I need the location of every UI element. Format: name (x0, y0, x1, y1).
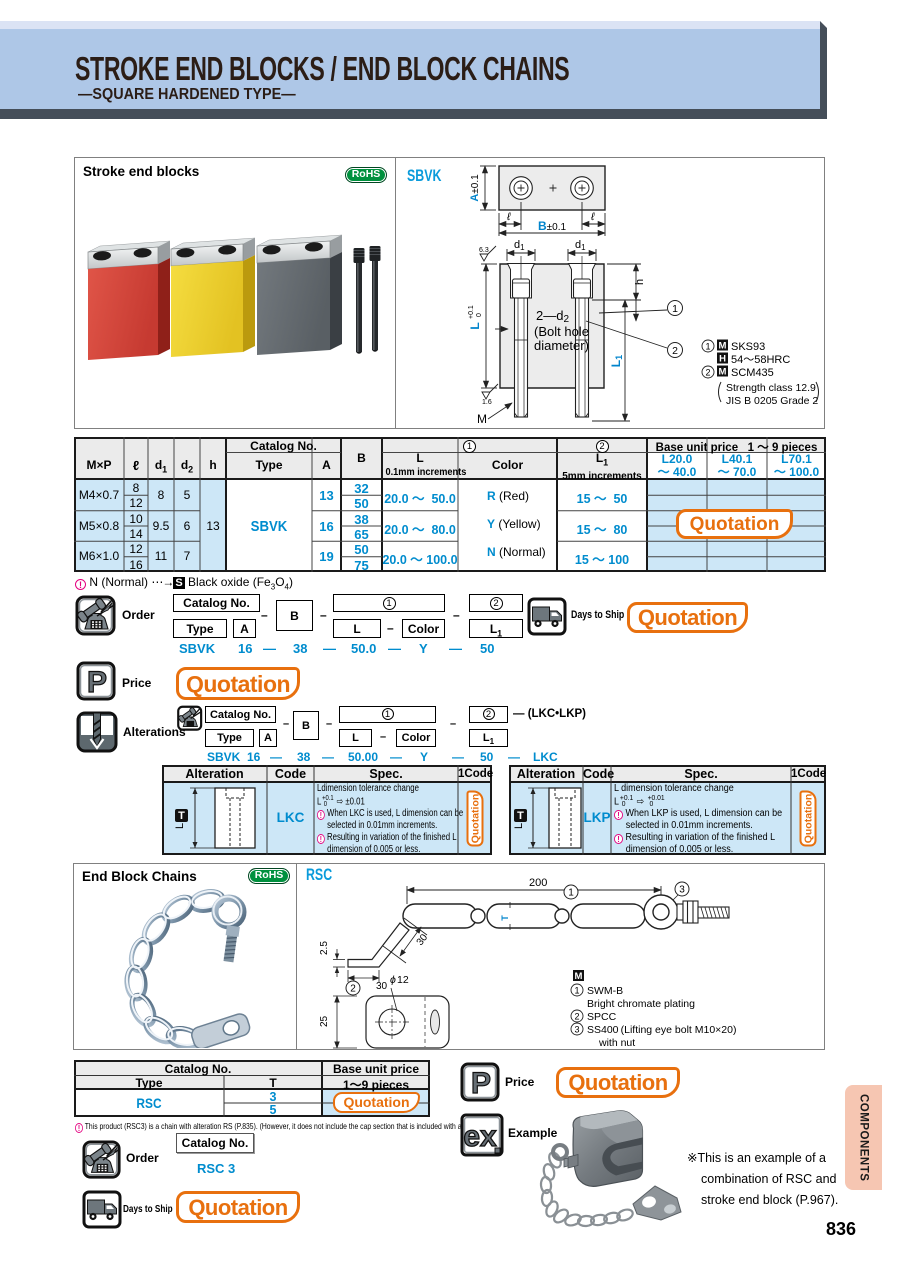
svg-text:12: 12 (397, 974, 409, 986)
svg-text:Bright chromate plating: Bright chromate plating (587, 998, 695, 1010)
svg-text:0: 0 (476, 313, 483, 317)
svg-text:d1: d1 (514, 239, 525, 252)
svg-text:30: 30 (415, 932, 431, 948)
svg-text:ℓ: ℓ (506, 211, 511, 223)
svg-text:with nut: with nut (598, 1037, 635, 1049)
svg-text:L: L (513, 823, 525, 829)
svg-text:2.5: 2.5 (319, 941, 330, 955)
svg-text:1: 1 (705, 342, 710, 352)
svg-text:1: 1 (672, 303, 678, 315)
svg-text:T: T (500, 915, 510, 921)
svg-text:2: 2 (672, 345, 678, 357)
svg-text:P: P (471, 1067, 491, 1100)
svg-text:B±0.1: B±0.1 (538, 219, 567, 233)
svg-text:M: M (719, 341, 727, 352)
svg-text:54〜58HRC: 54〜58HRC (731, 354, 790, 366)
svg-text:200: 200 (529, 877, 547, 889)
svg-text:SKS93: SKS93 (731, 341, 765, 353)
svg-text:M: M (575, 971, 583, 982)
svg-text:SCM435: SCM435 (731, 367, 774, 379)
svg-text:P: P (87, 666, 107, 699)
svg-text:M: M (719, 367, 727, 378)
svg-text:2: 2 (574, 1012, 579, 1022)
svg-text:h: h (634, 279, 646, 285)
svg-text:3: 3 (574, 1025, 579, 1035)
svg-text:T: T (178, 810, 185, 822)
svg-text:L1: L1 (609, 355, 624, 367)
svg-text:ɸ: ɸ (390, 974, 396, 986)
svg-text:H: H (719, 354, 726, 365)
svg-text:M: M (477, 412, 487, 426)
svg-text:6.3: 6.3 (479, 247, 489, 254)
svg-text:ℓ: ℓ (590, 211, 595, 223)
svg-text:SPCC: SPCC (587, 1011, 617, 1023)
svg-text:2: 2 (350, 984, 356, 995)
svg-text:Strength class 12.9: Strength class 12.9 (726, 382, 816, 394)
svg-text:SS400 (Lifting eye bolt M10×20: SS400 (Lifting eye bolt M10×20) (587, 1024, 737, 1036)
svg-text:d1: d1 (575, 239, 586, 252)
svg-text:JIS B 0205 Grade 2: JIS B 0205 Grade 2 (726, 395, 818, 407)
svg-text:1.6: 1.6 (482, 399, 492, 406)
svg-text:SWM-B: SWM-B (587, 985, 623, 997)
svg-text:T: T (517, 810, 524, 822)
svg-text:1: 1 (568, 888, 574, 899)
svg-text:3: 3 (679, 885, 685, 896)
svg-text:1: 1 (574, 986, 579, 996)
svg-text:2: 2 (705, 368, 710, 378)
svg-text:25: 25 (319, 1015, 330, 1027)
svg-text:(Bolt hole: (Bolt hole (534, 324, 589, 339)
svg-text:L: L (174, 823, 186, 829)
svg-text:A±0.1: A±0.1 (469, 174, 481, 202)
svg-text:ex: ex (463, 1120, 497, 1153)
svg-text:L: L (468, 322, 482, 329)
svg-text:diameter): diameter) (534, 338, 589, 353)
svg-text:30: 30 (376, 981, 388, 992)
svg-text:+0.1: +0.1 (468, 305, 475, 319)
